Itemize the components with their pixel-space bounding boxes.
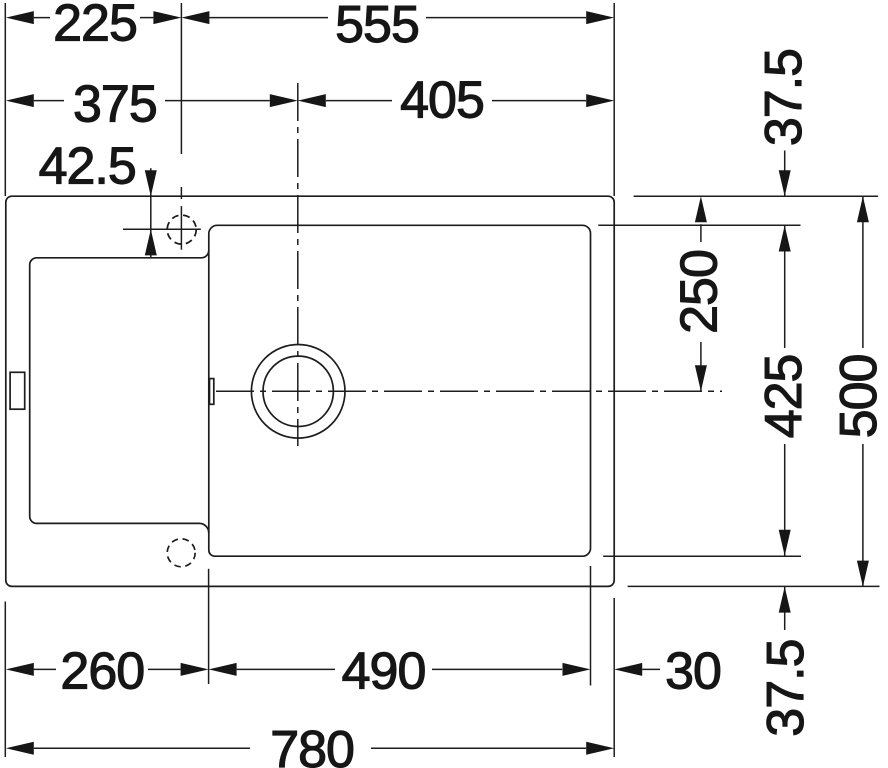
svg-text:260: 260 (60, 643, 144, 701)
svg-text:250: 250 (671, 250, 729, 334)
svg-text:425: 425 (755, 355, 813, 439)
svg-text:37.5: 37.5 (757, 639, 815, 736)
svg-text:500: 500 (830, 355, 888, 439)
svg-text:490: 490 (342, 643, 426, 701)
svg-text:42.5: 42.5 (39, 138, 136, 196)
svg-text:780: 780 (270, 721, 354, 768)
svg-text:30: 30 (665, 643, 721, 701)
svg-text:37.5: 37.5 (755, 49, 813, 146)
svg-text:405: 405 (400, 72, 484, 130)
svg-text:375: 375 (73, 76, 157, 134)
svg-text:225: 225 (53, 0, 137, 53)
svg-text:555: 555 (335, 0, 419, 54)
